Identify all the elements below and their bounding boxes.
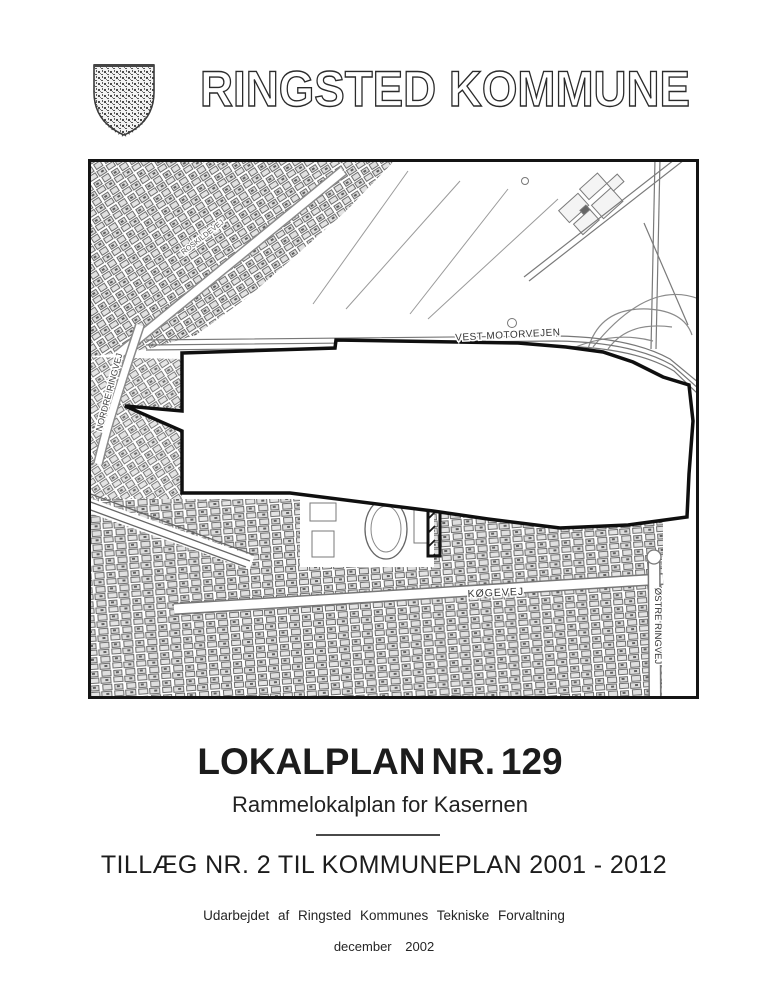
site-map-svg: VEST MOTORVEJEN ROSKILDEVEJ NORDRE RINGV…: [88, 159, 699, 699]
lokalplan-annex-bar: [428, 508, 440, 556]
roundabout-icon: [647, 550, 661, 564]
pond-icon: [522, 178, 529, 185]
pond2-icon: [508, 319, 517, 328]
municipality-title: RINGSTED KOMMUNE: [194, 60, 698, 120]
shield-top-bar: [94, 64, 154, 67]
divider-rule: [316, 834, 440, 836]
municipality-name-text: RINGSTED KOMMUNE: [200, 61, 690, 117]
site-map: VEST MOTORVEJEN ROSKILDEVEJ NORDRE RINGV…: [88, 159, 699, 699]
document-cover-page: RINGSTED KOMMUNE: [0, 0, 768, 994]
page-title: LOKALPLAN NR. 129: [0, 741, 760, 783]
map-label-oestre-ringvej: ØSTRE RINGVEJ: [652, 588, 663, 665]
east-open-area2: [662, 557, 699, 699]
prepared-by-line: Udarbejdet af Ringsted Kommunes Tekniske…: [0, 908, 768, 923]
date-line: december 2002: [0, 939, 768, 954]
page-subtitle: Rammelokalplan for Kasernen: [0, 792, 760, 818]
coat-of-arms-icon: [86, 58, 162, 140]
shield-outline: [94, 65, 154, 135]
map-label-koegevej: KØGEVEJ: [467, 586, 524, 600]
supplement-title: TILLÆG NR. 2 TIL KOMMUNEPLAN 2001 - 2012: [0, 851, 768, 880]
